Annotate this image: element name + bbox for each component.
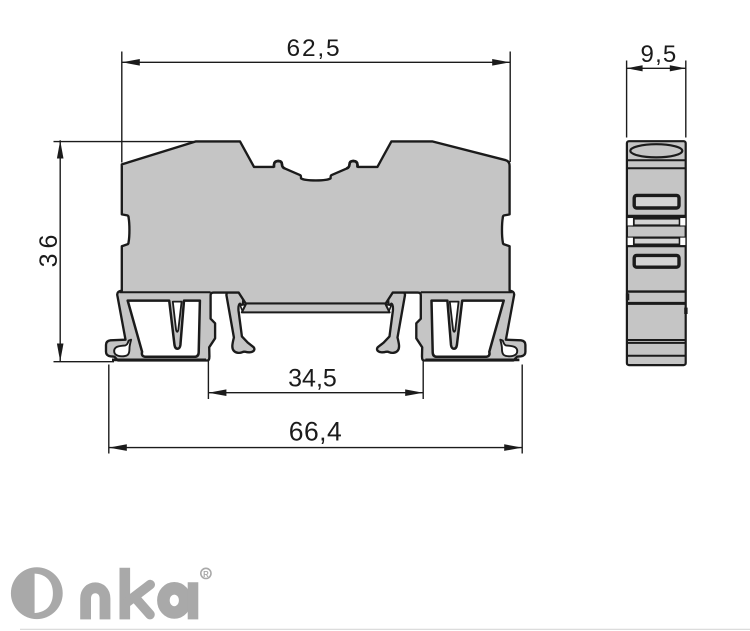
svg-text:34,5: 34,5: [288, 364, 337, 392]
svg-text:66,4: 66,4: [289, 417, 343, 447]
svg-text:R: R: [203, 570, 209, 579]
svg-text:9,5: 9,5: [641, 41, 678, 68]
svg-text:36: 36: [35, 230, 63, 268]
svg-text:62,5: 62,5: [287, 35, 342, 62]
